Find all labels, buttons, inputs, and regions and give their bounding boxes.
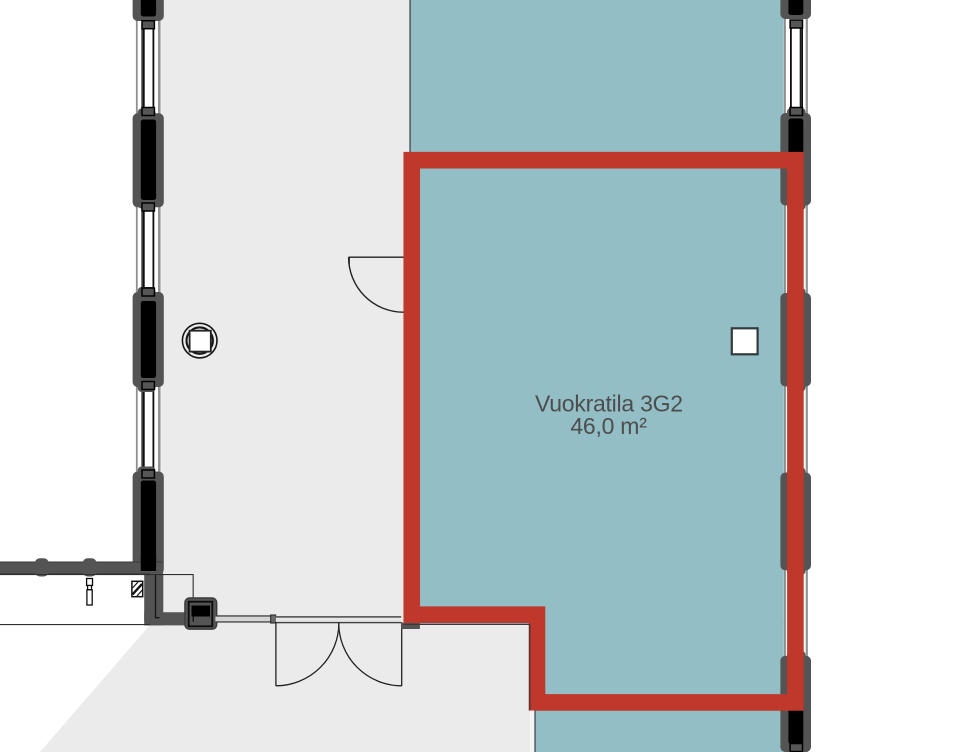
svg-text:46,0 m²: 46,0 m² bbox=[570, 413, 647, 439]
